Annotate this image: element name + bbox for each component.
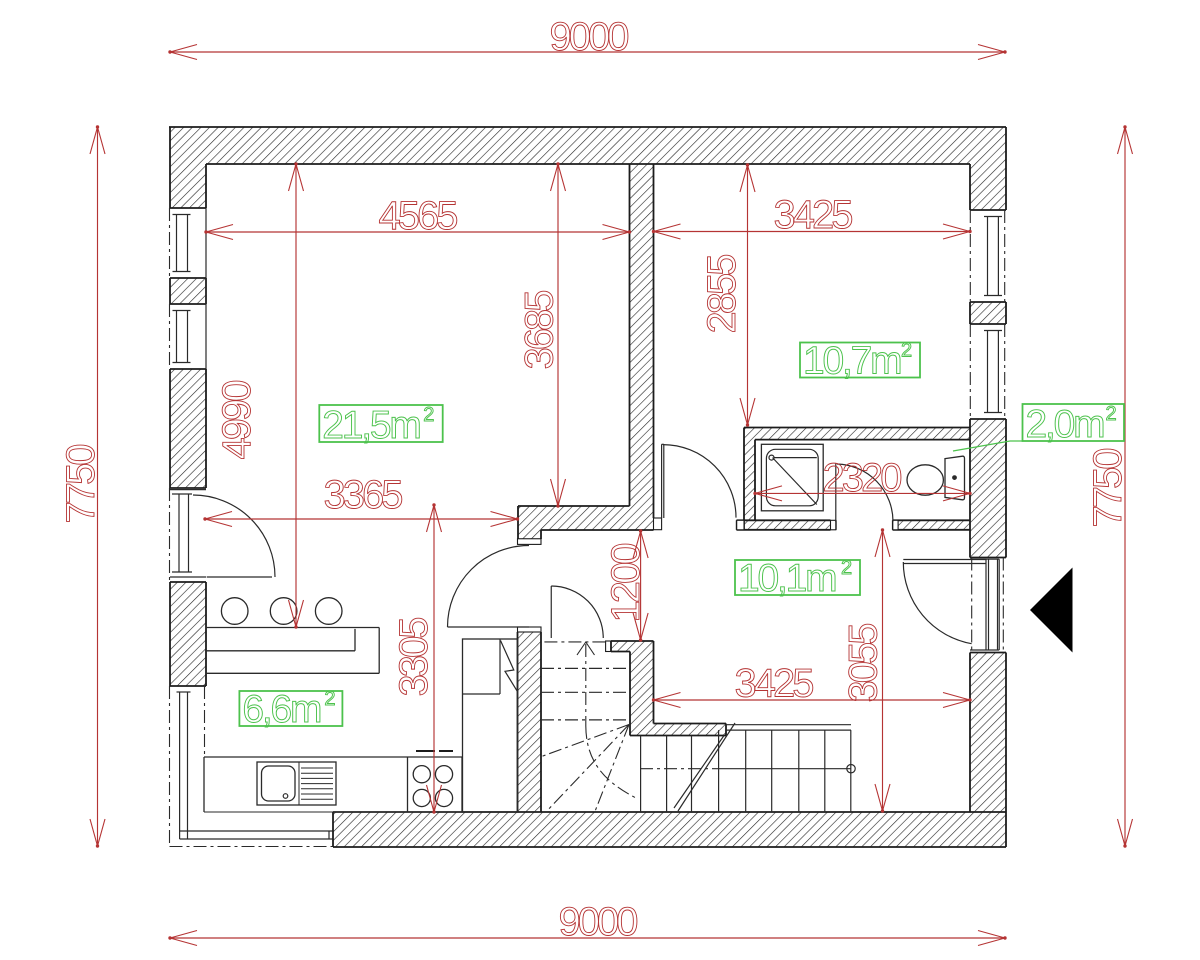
svg-text:2: 2 — [841, 557, 852, 579]
svg-text:10,7m: 10,7m — [803, 340, 900, 383]
svg-text:2: 2 — [901, 340, 912, 362]
svg-text:4990: 4990 — [215, 381, 259, 460]
svg-text:2: 2 — [324, 688, 335, 710]
svg-text:1200: 1200 — [604, 544, 648, 623]
svg-text:2855: 2855 — [700, 255, 744, 334]
svg-text:2: 2 — [1106, 403, 1117, 425]
svg-text:3055: 3055 — [842, 624, 886, 703]
svg-text:2: 2 — [423, 404, 434, 426]
svg-text:3305: 3305 — [392, 618, 436, 697]
svg-text:10,1m: 10,1m — [738, 557, 835, 600]
svg-text:2320: 2320 — [823, 456, 902, 500]
svg-text:9000: 9000 — [559, 900, 638, 944]
svg-text:3365: 3365 — [324, 473, 403, 517]
svg-text:9000: 9000 — [550, 15, 629, 59]
svg-text:7750: 7750 — [59, 445, 103, 524]
svg-text:21,5m: 21,5m — [322, 404, 419, 447]
svg-text:3425: 3425 — [735, 662, 814, 706]
svg-text:3685: 3685 — [518, 291, 562, 370]
svg-text:4565: 4565 — [379, 194, 458, 238]
svg-text:7750: 7750 — [1086, 449, 1130, 528]
svg-text:3425: 3425 — [774, 193, 853, 237]
svg-text:6,6m: 6,6m — [242, 688, 320, 731]
svg-text:2,0m: 2,0m — [1026, 403, 1104, 446]
